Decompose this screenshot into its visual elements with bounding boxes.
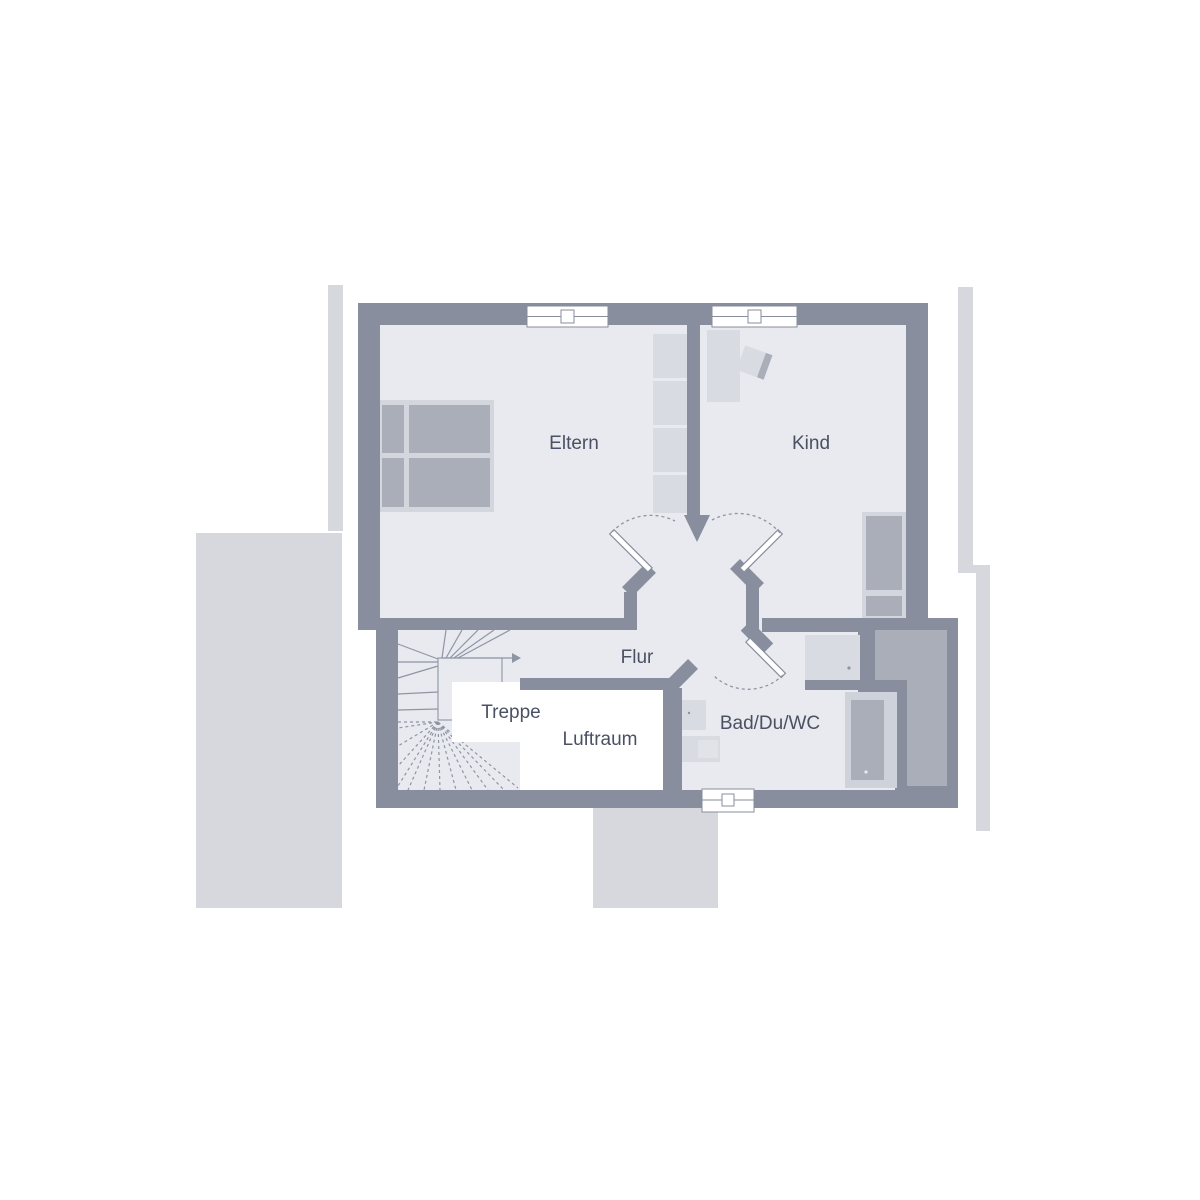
bed-parents-mattress-2	[409, 458, 490, 507]
wall-bottom	[376, 790, 958, 808]
wall-stub-left-vertical	[624, 592, 637, 630]
wall-right	[906, 303, 928, 618]
shower	[805, 635, 860, 680]
roof-block-bottom	[593, 806, 718, 908]
window-symbol-bathroom	[702, 789, 754, 812]
washbasin	[682, 700, 706, 730]
shelf-segment	[653, 381, 687, 425]
room-label-hallway: Flur	[621, 647, 654, 668]
roof-strip-left	[328, 285, 343, 531]
wall-luftraum-top	[520, 678, 672, 690]
room-label-void: Luftraum	[563, 729, 638, 750]
bathtub-drain	[864, 770, 867, 773]
room-label-bathroom: Bad/Du/WC	[720, 713, 820, 734]
wall-lower-left	[376, 618, 398, 808]
bathtub-basin	[851, 700, 884, 780]
bed-child-pillow	[866, 596, 902, 616]
room-label-stairs: Treppe	[481, 702, 541, 723]
toilet-seat	[698, 740, 718, 758]
floor-plan: Eltern Kind Flur Treppe Luftraum Bad/Du/…	[0, 0, 1200, 1200]
room-label-child: Kind	[792, 433, 830, 454]
wall-parents-bottom	[358, 618, 630, 630]
shower-drain	[847, 666, 850, 669]
roof-strip-right-lower	[976, 565, 990, 831]
wall-bath-nook	[663, 688, 682, 790]
bed-parents-pillow-1	[382, 405, 404, 453]
wall-divider-rooms	[687, 325, 700, 517]
room-label-parents: Eltern	[549, 433, 599, 454]
shower-tray	[805, 635, 860, 680]
bed-parents	[377, 400, 494, 512]
wall-left	[358, 303, 380, 630]
washbasin-body	[682, 700, 706, 730]
washbasin-drain	[688, 712, 690, 714]
wall-top	[358, 303, 928, 325]
wardrobe-child	[707, 330, 740, 402]
shelf-segment	[653, 428, 687, 472]
bed-child-mattress	[866, 516, 902, 590]
floor-plan-canvas: Eltern Kind Flur Treppe Luftraum Bad/Du/…	[0, 0, 1200, 1200]
roof-block-left	[196, 533, 342, 908]
shelf-parents	[653, 334, 687, 513]
bed-child	[862, 512, 906, 620]
bed-parents-mattress-1	[409, 405, 490, 453]
roof-strip-right-upper	[958, 287, 973, 573]
bathtub	[845, 692, 897, 788]
bed-parents-pillow-2	[382, 458, 404, 507]
shelf-segment	[653, 475, 687, 513]
window-symbol-parents	[527, 306, 608, 327]
toilet	[682, 736, 720, 762]
shelf-segment	[653, 334, 687, 378]
window-symbol-child	[712, 306, 797, 327]
